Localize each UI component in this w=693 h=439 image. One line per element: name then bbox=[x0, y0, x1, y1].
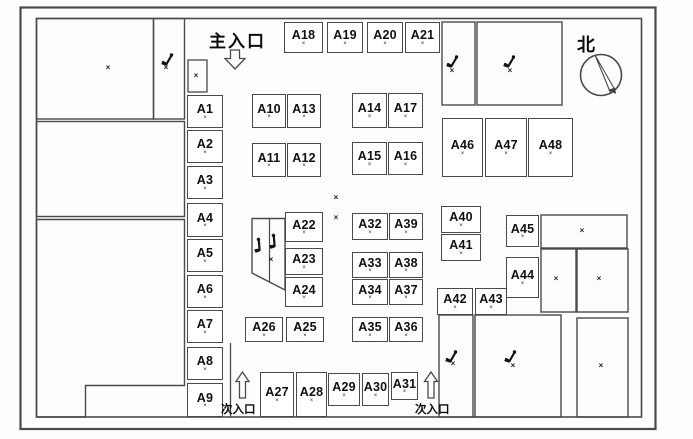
cad-marker: × bbox=[203, 261, 207, 264]
booth-A34: A34× bbox=[352, 279, 388, 305]
booth-A2: A2× bbox=[187, 130, 223, 163]
booth-label: A2 bbox=[197, 138, 213, 151]
cad-marker: × bbox=[521, 236, 525, 239]
booth-A9: A9× bbox=[187, 383, 223, 417]
booth-label: A16 bbox=[394, 150, 418, 163]
cad-marker: × bbox=[489, 307, 493, 310]
booth-A32: A32× bbox=[352, 213, 388, 240]
booth-A4: A4× bbox=[187, 203, 223, 237]
booth-label: A29 bbox=[332, 381, 356, 394]
booth-label: A36 bbox=[394, 321, 418, 334]
room-right-mid bbox=[577, 249, 628, 312]
cad-marker: × bbox=[203, 117, 207, 120]
north-compass-icon bbox=[581, 55, 622, 96]
booth-label: A23 bbox=[292, 253, 316, 266]
cad-marker: × bbox=[203, 332, 207, 335]
booth-A23: A23× bbox=[285, 248, 323, 275]
cad-marker: × bbox=[521, 283, 525, 286]
cross-mark: × bbox=[450, 67, 455, 75]
booth-label: A21 bbox=[411, 29, 435, 42]
booth-A30: A30× bbox=[362, 373, 389, 406]
booth-label: A20 bbox=[373, 29, 397, 42]
cad-marker: × bbox=[203, 225, 207, 228]
booth-A11: A11× bbox=[252, 143, 286, 177]
booth-A3: A3× bbox=[187, 166, 223, 199]
room-bottom-left bbox=[37, 220, 185, 418]
booth-label: A32 bbox=[358, 218, 382, 231]
cad-marker: × bbox=[421, 43, 425, 46]
cad-marker: × bbox=[453, 307, 457, 310]
cad-marker: × bbox=[203, 405, 207, 408]
secondary-entrance-left-arrow-icon bbox=[236, 372, 249, 398]
booth-label: A39 bbox=[394, 218, 418, 231]
booth-label: A28 bbox=[300, 386, 324, 399]
booth-label: A43 bbox=[479, 293, 503, 306]
booth-A14: A14× bbox=[352, 93, 387, 128]
floor-plan: 主入口 北 次入口 次入口 A1×A2×A3×A4×A5×A6×A7×A8×A9… bbox=[0, 0, 693, 439]
booth-label: A15 bbox=[358, 150, 382, 163]
booth-A13: A13× bbox=[287, 94, 321, 128]
booth-label: A18 bbox=[292, 29, 316, 42]
booth-A26: A26× bbox=[245, 317, 283, 342]
booth-A15: A15× bbox=[352, 142, 387, 175]
booth-A28: A28× bbox=[296, 372, 327, 417]
cad-marker: × bbox=[368, 297, 372, 300]
booth-A45: A45× bbox=[506, 215, 539, 247]
cad-marker: × bbox=[504, 153, 508, 156]
cross-mark: × bbox=[269, 256, 274, 264]
booth-label: A47 bbox=[494, 139, 518, 152]
booth-A27: A27× bbox=[260, 372, 294, 417]
booth-label: A6 bbox=[197, 283, 213, 296]
booth-A31: A31× bbox=[391, 372, 418, 400]
cad-marker: × bbox=[459, 253, 463, 256]
room-mid-left bbox=[37, 122, 185, 217]
booth-label: A44 bbox=[511, 269, 535, 282]
cad-marker: × bbox=[302, 116, 306, 119]
booth-A40: A40× bbox=[441, 206, 481, 233]
booth-A38: A38× bbox=[389, 252, 423, 278]
cad-marker: × bbox=[368, 270, 372, 273]
secondary-entrance-left-label: 次入口 bbox=[221, 401, 256, 417]
booth-A29: A29× bbox=[328, 373, 360, 406]
cad-marker: × bbox=[203, 152, 207, 155]
stairs-icon bbox=[161, 52, 174, 66]
stairs-icon-glyph bbox=[161, 52, 174, 66]
booth-A43: A43× bbox=[475, 288, 507, 315]
booth-A6: A6× bbox=[187, 275, 223, 308]
stairs-icon-glyph bbox=[445, 349, 458, 363]
booth-A20: A20× bbox=[367, 22, 403, 53]
stairs-icon bbox=[504, 349, 517, 363]
booth-A22: A22× bbox=[285, 212, 323, 242]
booth-A16: A16× bbox=[388, 142, 423, 175]
booth-label: A46 bbox=[451, 139, 475, 152]
booth-A8: A8× bbox=[187, 347, 223, 380]
cross-mark: × bbox=[194, 72, 199, 80]
booth-A35: A35× bbox=[352, 317, 388, 342]
booth-A42: A42× bbox=[437, 288, 473, 315]
main-entrance-arrow-icon bbox=[225, 50, 245, 69]
cad-marker: × bbox=[404, 270, 408, 273]
room-stairs-bottom-2 bbox=[475, 315, 561, 417]
booth-label: A42 bbox=[443, 293, 467, 306]
cad-marker: × bbox=[302, 267, 306, 270]
cross-mark: × bbox=[554, 275, 559, 283]
cad-marker: × bbox=[302, 232, 306, 235]
cad-marker: × bbox=[303, 335, 307, 338]
booth-A1: A1× bbox=[187, 95, 223, 128]
booth-A19: A19× bbox=[327, 22, 363, 53]
cad-marker: × bbox=[368, 116, 372, 119]
cad-marker: × bbox=[203, 297, 207, 300]
cad-marker: × bbox=[267, 165, 271, 168]
booth-label: A5 bbox=[197, 247, 213, 260]
booth-label: A27 bbox=[265, 386, 289, 399]
cad-marker: × bbox=[310, 400, 314, 403]
cross-mark: × bbox=[599, 362, 604, 370]
booth-A7: A7× bbox=[187, 310, 223, 343]
booth-A24: A24× bbox=[285, 277, 323, 307]
room-top-left-column bbox=[154, 19, 185, 120]
cad-marker: × bbox=[342, 395, 346, 398]
booth-label: A41 bbox=[449, 239, 473, 252]
cad-marker: × bbox=[267, 116, 271, 119]
booth-label: A3 bbox=[197, 174, 213, 187]
stairs-icon bbox=[445, 349, 458, 363]
cross-mark: × bbox=[580, 227, 585, 235]
booth-A12: A12× bbox=[287, 143, 321, 177]
cad-marker: × bbox=[383, 43, 387, 46]
booth-A48: A48× bbox=[528, 118, 573, 177]
booth-A37: A37× bbox=[389, 279, 423, 305]
cross-mark: × bbox=[511, 362, 516, 370]
cad-marker: × bbox=[368, 335, 372, 338]
booth-A36: A36× bbox=[389, 317, 423, 342]
booth-A10: A10× bbox=[252, 94, 286, 128]
cad-marker: × bbox=[368, 232, 372, 235]
cross-mark: × bbox=[508, 67, 513, 75]
stairs-icon-glyph bbox=[504, 349, 517, 363]
cad-marker: × bbox=[275, 400, 279, 403]
cad-marker: × bbox=[459, 225, 463, 228]
cad-marker: × bbox=[549, 153, 553, 156]
room-top-left bbox=[37, 19, 154, 120]
booth-A39: A39× bbox=[389, 213, 423, 240]
cad-marker: × bbox=[461, 153, 465, 156]
cad-marker: × bbox=[203, 188, 207, 191]
cross-mark: × bbox=[334, 214, 339, 222]
cad-marker: × bbox=[302, 165, 306, 168]
booth-label: A35 bbox=[358, 321, 382, 334]
cad-marker: × bbox=[203, 369, 207, 372]
cad-marker: × bbox=[262, 335, 266, 338]
north-label: 北 bbox=[577, 31, 595, 57]
booth-label: A1 bbox=[197, 103, 213, 116]
booth-label: A8 bbox=[197, 355, 213, 368]
booth-label: A40 bbox=[449, 211, 473, 224]
booth-label: A19 bbox=[333, 29, 357, 42]
cad-marker: × bbox=[404, 335, 408, 338]
booth-A47: A47× bbox=[485, 118, 527, 177]
cross-mark: × bbox=[106, 64, 111, 72]
cross-mark: × bbox=[334, 194, 339, 202]
booth-A25: A25× bbox=[286, 317, 324, 342]
cad-marker: × bbox=[404, 297, 408, 300]
cad-marker: × bbox=[368, 164, 372, 167]
booth-label: A48 bbox=[539, 139, 563, 152]
stairs-icon bbox=[446, 54, 459, 68]
booth-A17: A17× bbox=[388, 93, 423, 128]
booth-label: A17 bbox=[394, 102, 418, 115]
stairs-icon bbox=[503, 54, 516, 68]
booth-A41: A41× bbox=[441, 234, 481, 261]
cad-marker: × bbox=[404, 116, 408, 119]
booth-A44: A44× bbox=[506, 257, 539, 298]
cad-marker: × bbox=[404, 164, 408, 167]
booth-label: A30 bbox=[364, 381, 388, 394]
secondary-entrance-right-arrow-icon bbox=[425, 372, 438, 398]
booth-A5: A5× bbox=[187, 239, 223, 272]
booth-label: A26 bbox=[252, 321, 276, 334]
main-entrance-label: 主入口 bbox=[209, 27, 266, 52]
stairs-icon-glyph bbox=[446, 54, 459, 68]
booth-label: A25 bbox=[293, 321, 317, 334]
cad-marker: × bbox=[403, 391, 407, 394]
cad-marker: × bbox=[404, 232, 408, 235]
cad-marker: × bbox=[302, 297, 306, 300]
booth-A33: A33× bbox=[352, 252, 388, 278]
room-stairs-top-2 bbox=[477, 22, 562, 105]
booth-label: A7 bbox=[197, 318, 213, 331]
booth-label: A14 bbox=[358, 102, 382, 115]
cad-marker: × bbox=[343, 43, 347, 46]
stairs-icon-glyph bbox=[503, 54, 516, 68]
booth-A18: A18× bbox=[284, 22, 323, 53]
booth-A21: A21× bbox=[405, 22, 440, 53]
cross-mark: × bbox=[597, 275, 602, 283]
hall-wall bbox=[37, 19, 642, 418]
cad-marker: × bbox=[374, 395, 378, 398]
booth-A46: A46× bbox=[442, 118, 483, 177]
cad-marker: × bbox=[302, 43, 306, 46]
secondary-entrance-right-label: 次入口 bbox=[415, 401, 450, 417]
